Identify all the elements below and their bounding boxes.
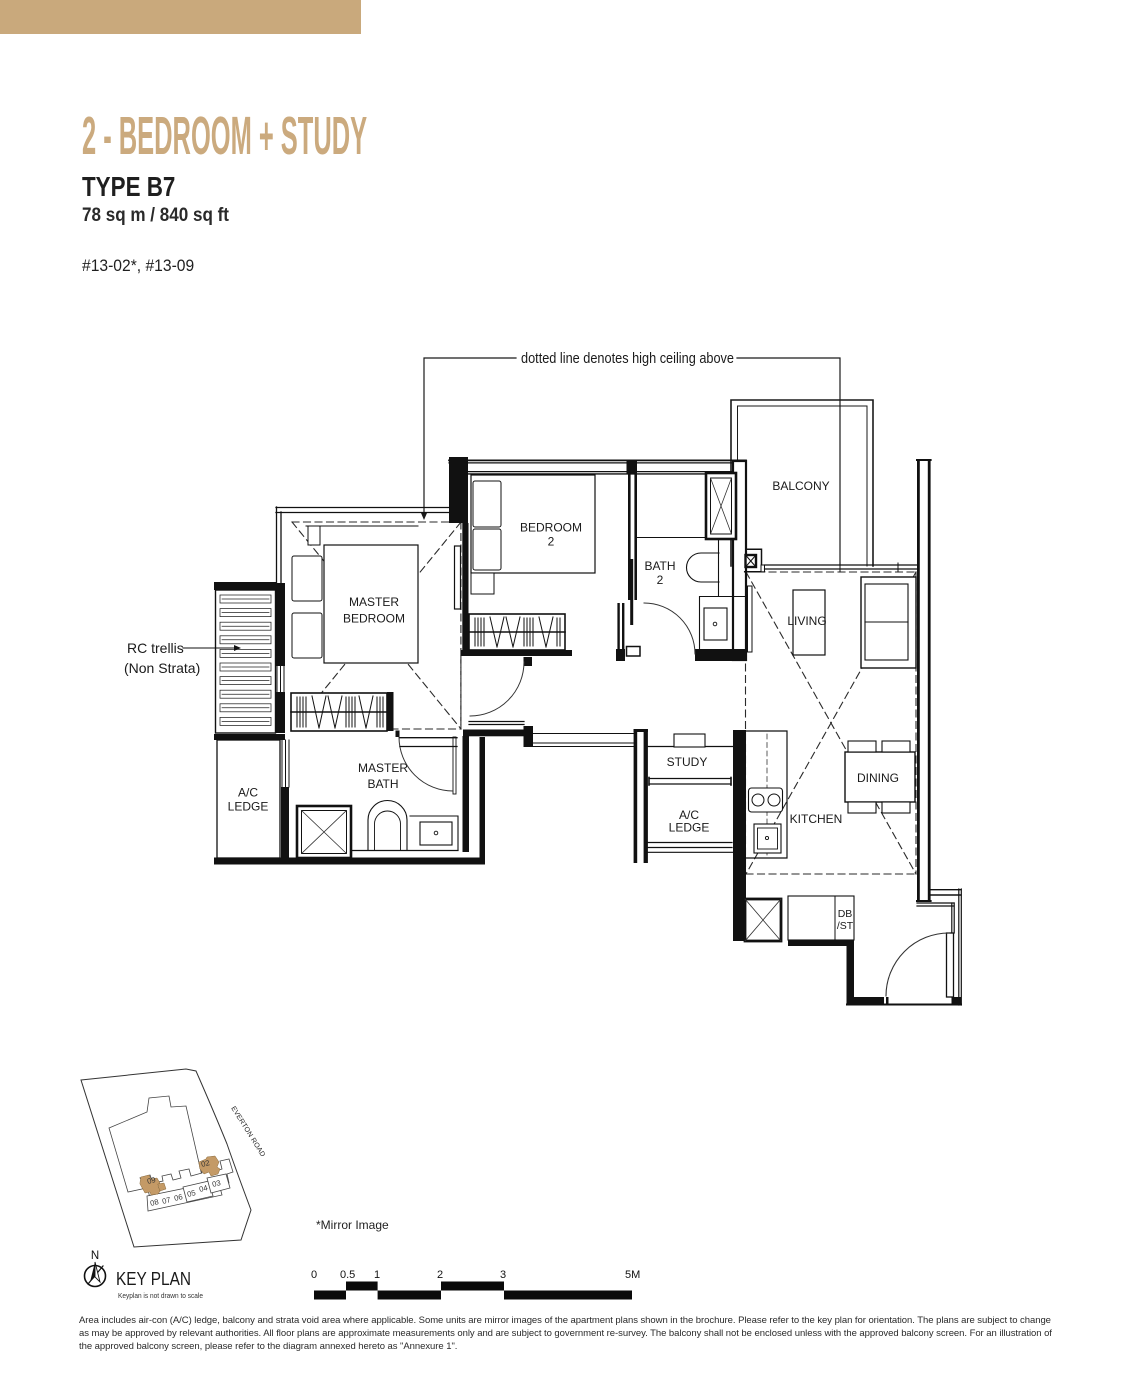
svg-text:BATH: BATH	[644, 559, 675, 573]
svg-text:Keyplan is not drawn to scale: Keyplan is not drawn to scale	[118, 1291, 203, 1300]
svg-text:5M: 5M	[625, 1269, 640, 1281]
svg-text:0: 0	[311, 1269, 317, 1281]
svg-text:2: 2	[657, 573, 664, 587]
svg-text:STUDY: STUDY	[667, 755, 708, 769]
svg-text:EVERTON ROAD: EVERTON ROAD	[229, 1105, 266, 1158]
svg-text:LEDGE: LEDGE	[228, 800, 269, 814]
svg-text:KITCHEN: KITCHEN	[790, 812, 843, 826]
svg-text:BEDROOM: BEDROOM	[520, 521, 582, 535]
svg-text:MASTER: MASTER	[349, 595, 399, 609]
svg-text:0.5: 0.5	[340, 1269, 355, 1281]
svg-text:3: 3	[500, 1269, 506, 1281]
svg-text:(Non Strata): (Non Strata)	[124, 660, 200, 676]
svg-text:BEDROOM: BEDROOM	[343, 612, 405, 626]
svg-text:MASTER: MASTER	[358, 761, 408, 775]
svg-text:BATH: BATH	[367, 777, 398, 791]
svg-text:1: 1	[374, 1269, 380, 1281]
svg-text:N: N	[91, 1250, 99, 1262]
svg-text:LIVING: LIVING	[787, 614, 826, 628]
svg-text:/ST: /ST	[837, 920, 854, 932]
svg-text:A/C: A/C	[238, 786, 258, 800]
svg-text:BALCONY: BALCONY	[772, 479, 829, 493]
svg-text:2: 2	[548, 535, 555, 549]
svg-text:dotted line denotes high ceili: dotted line denotes high ceiling above	[521, 350, 734, 367]
svg-text:RC trellis: RC trellis	[127, 640, 184, 656]
svg-text:KEY PLAN: KEY PLAN	[116, 1268, 191, 1289]
svg-text:DINING: DINING	[857, 771, 899, 785]
svg-text:LEDGE: LEDGE	[669, 821, 710, 835]
svg-text:DB: DB	[838, 908, 853, 920]
svg-text:2: 2	[437, 1269, 443, 1281]
